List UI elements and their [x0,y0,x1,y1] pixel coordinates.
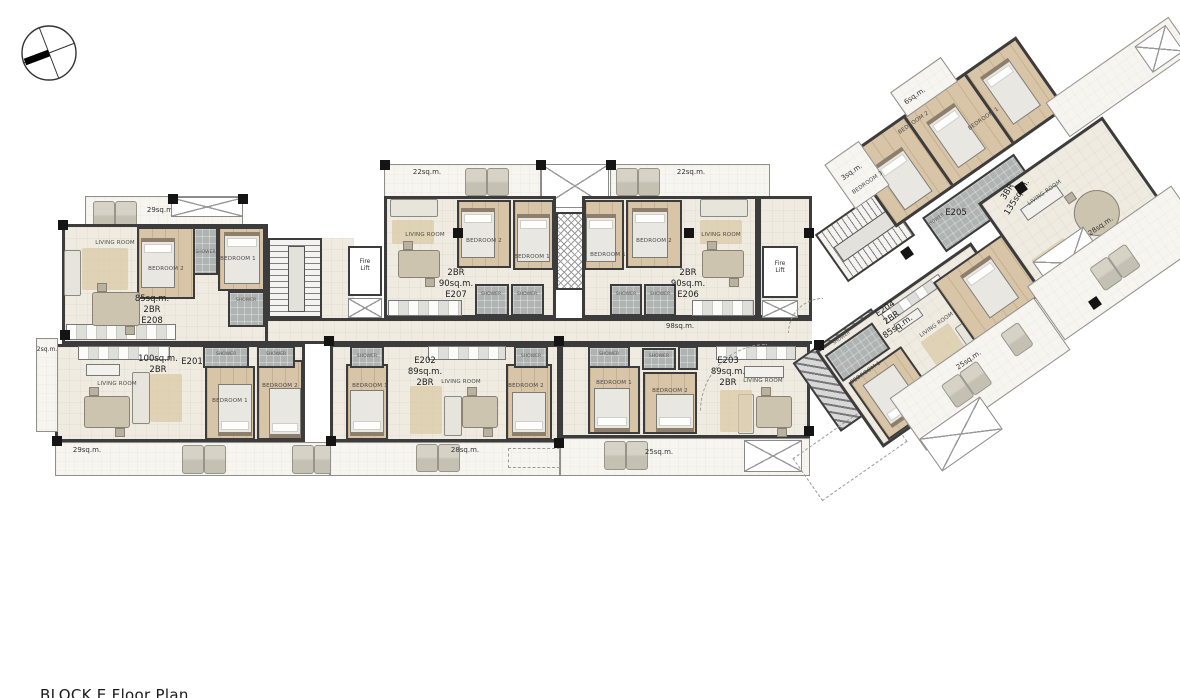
bed [512,392,546,436]
unit-label-e206: 2BR 90sq.m. E206 [658,268,718,301]
unit-type: 2BR [122,305,182,316]
sofa [444,396,462,436]
column [554,336,564,346]
dining-table [462,396,498,428]
lounge-chair [416,444,438,472]
room-label: LIVING ROOM [692,232,750,239]
sofa [132,372,150,424]
room-label: LIVING ROOM [396,232,454,239]
room-label: SHOWER [646,354,672,360]
fire-lift-line: Fire [348,258,382,265]
lounge-chair [616,168,638,196]
balcony-area-label: 2sq.m. [30,345,64,354]
fire-lift-line: Lift [762,267,798,274]
room-label: SHOWER [613,292,639,298]
fire-lift-label: Fire Lift [348,258,382,272]
room-label: LIVING ROOM [84,240,146,247]
room-label: LIVING ROOM [88,381,146,388]
room-label: BEDROOM 1 [344,383,396,390]
sofa [700,199,748,217]
e206-kitchen [692,300,754,316]
bed [218,384,252,436]
room-label: BEDROOM 1 [582,252,634,259]
lounge-chair [638,168,660,196]
room-label: BEDROOM 2 [458,238,510,245]
room-label: BEDROOM 2 [628,238,680,245]
rug [150,374,182,422]
column [52,436,62,446]
north-arrow-icon [16,20,82,86]
room-label: SHOWER [263,352,289,358]
unit-area: 89sq.m. [395,367,455,378]
column [606,160,616,170]
service-duct [556,212,584,290]
unit-id: E202 [395,356,455,367]
unit-type: 2BR [395,378,455,389]
unit-id-e201: E201 [172,357,212,368]
fire-lift-line: Lift [348,265,382,272]
rug [410,386,442,434]
lounge-chair [604,441,626,470]
room-label: SHOWER [354,354,380,360]
staircase [268,238,322,318]
unit-type: 2BR [426,268,486,279]
sofa [390,199,438,217]
e203-wc [678,346,698,370]
column [326,436,336,446]
column [814,340,824,350]
kitchen-island [86,364,120,376]
room-label: SHOWER [514,292,540,298]
unit-label-e202: E202 89sq.m. 2BR [395,356,455,389]
lounge-chair [204,445,226,474]
balcony-area-label: 28sq.m. [442,446,488,455]
bed [960,255,1019,318]
column [58,220,68,230]
room-label: BEDROOM 1 [506,254,558,261]
lounge-chair [1000,322,1034,358]
room-label: BEDROOM 1 [588,380,640,387]
stair-rail [288,246,305,312]
column [60,330,70,340]
room-label: SHOWER [213,352,239,358]
unit-type: 2BR [658,268,718,279]
bed [632,208,668,258]
corridor-area-label: 98sq.m. [658,322,702,331]
bed [461,208,495,258]
column [238,194,248,204]
room-label: BEDROOM 1 [212,256,264,263]
bed [350,390,384,436]
plan-caption: BLOCK E Floor Plan [40,686,189,698]
room-label: SHOWER [596,352,622,358]
column [554,438,564,448]
e207-kitchen [388,300,462,316]
e208-shower2 [228,291,265,327]
bed [656,394,694,432]
unit-area: 85sq.m. [122,294,182,305]
bed [594,388,630,432]
lounge-chair [465,168,487,196]
planter-box [508,448,560,468]
balcony-area-label: 29sq.m. [64,446,110,455]
fire-lift-line: Fire [762,260,798,267]
balcony-shaft [1134,25,1180,73]
lounge-chair [292,445,314,474]
room-label: BEDROOM 2 [644,388,696,395]
e207-shower2 [511,284,544,316]
column [380,160,390,170]
column [684,228,694,238]
bed [141,238,175,288]
corridor [268,318,812,344]
room-label: BEDROOM 1 [204,398,256,405]
unit-label-e208: 85sq.m. 2BR E208 [122,294,182,327]
lounge-chair [487,168,509,196]
unit-id: E207 [426,290,486,301]
balcony-shaft [744,440,802,472]
dining-table [84,396,130,428]
unit-area: 90sq.m. [426,279,486,290]
column [804,426,814,436]
column [168,194,178,204]
unit-id-e205: E205 [936,208,976,219]
room-label: SHOWER [193,250,218,256]
floor-plan: 29sq.m. 22sq.m. 22sq.m. LIVING ROOM BEDR… [0,0,1180,698]
fire-lift-label: Fire Lift [762,260,798,274]
column [453,228,463,238]
sofa [64,250,81,296]
skylight-shaft [171,197,243,217]
room-label: SHOWER [231,298,261,304]
room-label: BEDROOM 2 [254,383,306,390]
column [536,160,546,170]
unit-id: E206 [658,290,718,301]
bed [269,388,301,438]
balcony-e205-top [1046,17,1180,137]
room-label: BEDROOM 2 [140,266,192,273]
unit-area: 90sq.m. [658,279,718,290]
e206-shower [610,284,642,316]
unit-label-e207: 2BR 90sq.m. E207 [426,268,486,301]
lift-shaft [348,298,382,318]
room-label: SHOWER [518,354,544,360]
unit-id: E208 [122,316,182,327]
column [804,228,814,238]
balcony-area-label: 22sq.m. [404,168,450,177]
lounge-chair [182,445,204,474]
column [324,336,334,346]
column [900,246,914,260]
balcony-area-label: 25sq.m. [636,448,682,457]
room-label: BEDROOM 2 [500,383,552,390]
balcony-area-label: 22sq.m. [668,168,714,177]
